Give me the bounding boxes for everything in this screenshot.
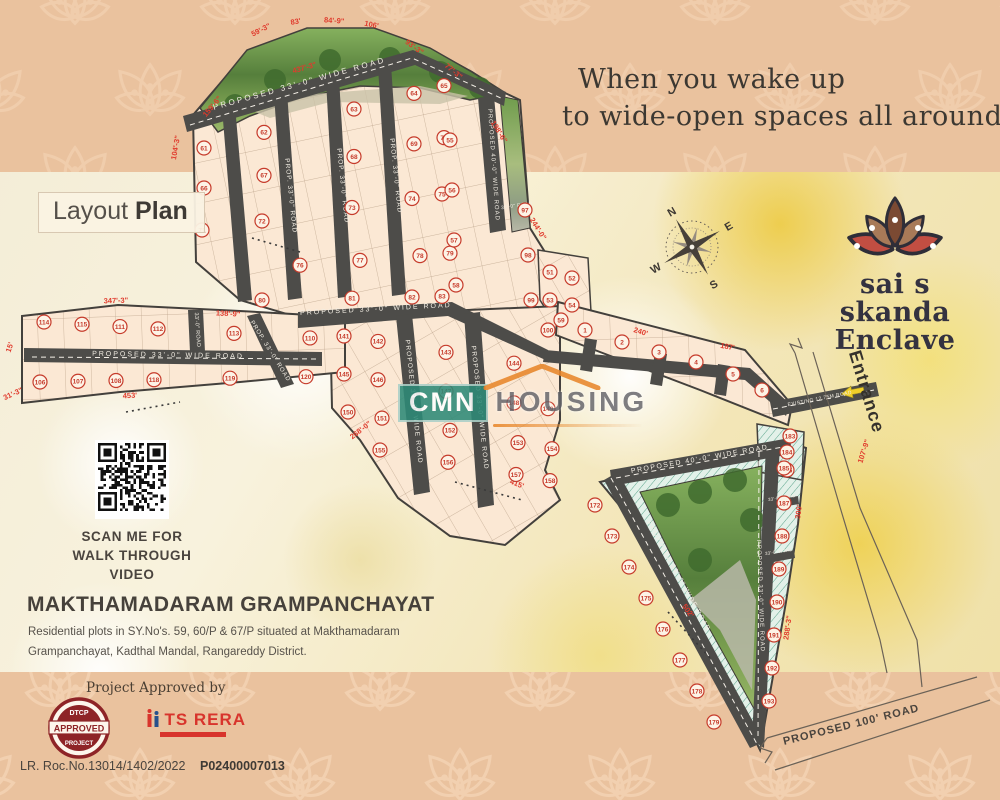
- boundary-dimension: 15': [4, 341, 16, 354]
- boundary-dimension: 453': [122, 391, 137, 401]
- plot-number: 82: [408, 294, 416, 301]
- plot-number: 155: [375, 447, 386, 454]
- plot-number: 118: [149, 377, 160, 384]
- plot-number: 73: [348, 205, 356, 212]
- plot-number: 1: [583, 327, 587, 334]
- plot-number: 172: [590, 502, 601, 509]
- plot-number: 142: [373, 339, 384, 346]
- plot-number: 152: [445, 428, 456, 435]
- plot-number: 179: [709, 719, 720, 726]
- plot-number: 69: [410, 141, 418, 148]
- plot-number: 58: [452, 282, 460, 289]
- plot-number: 151: [377, 415, 388, 422]
- plot-number: 99: [527, 297, 535, 304]
- plot-number: 63: [350, 106, 358, 113]
- rera-number: P02400007013: [200, 759, 285, 773]
- plot-number: 108: [111, 378, 122, 385]
- location-desc-line2: Grampanchayat, Kadthal Mandal, Rangaredd…: [28, 646, 307, 658]
- plot-number: 146: [373, 377, 384, 384]
- banner-line1: When you wake up: [578, 64, 845, 95]
- plot-number: 177: [675, 657, 686, 664]
- plot-number: 97: [521, 207, 529, 214]
- plot-number: 5: [731, 371, 735, 378]
- plot-number: 54: [568, 302, 576, 309]
- dtcp-approved-badge: DTCP APPROVED PROJECT: [48, 697, 110, 759]
- plot-number: 110: [305, 335, 316, 342]
- boundary-dimension: 138'-9": [216, 308, 241, 318]
- plot-number: 174: [624, 564, 635, 571]
- plot-number: 81: [348, 296, 356, 303]
- plot-number: 78: [416, 253, 424, 260]
- plot-number: 79: [446, 251, 454, 258]
- svg-text:PROJECT: PROJECT: [65, 741, 94, 747]
- plot-number: 187: [779, 500, 790, 507]
- qr-caption-line2: WALK THROUGH VIDEO: [52, 546, 212, 584]
- plot-number: 191: [769, 632, 780, 639]
- brand-name-line1: sai s skanda: [800, 271, 990, 327]
- watermark-housing: HOUSING: [496, 386, 648, 418]
- plot-number: 67: [260, 173, 268, 180]
- plot-number: 145: [339, 371, 350, 378]
- plot-number: 153: [513, 440, 524, 447]
- plot-number: 190: [772, 599, 783, 606]
- svg-text:APPROVED: APPROVED: [54, 724, 105, 734]
- qr-caption-line1: SCAN ME FOR: [52, 527, 212, 546]
- plot-number: 52: [568, 275, 576, 282]
- plot-number: 74: [408, 196, 416, 203]
- plot-number: 157: [511, 472, 522, 479]
- boundary-dimension: 107'-9": [856, 438, 872, 465]
- plot-number: 4: [694, 359, 698, 366]
- plot-number: 141: [339, 333, 350, 340]
- ts-rera-strip: [160, 732, 226, 737]
- banner-line2: to wide-open spaces all around you: [562, 101, 1000, 132]
- plot-number: 173: [607, 533, 618, 540]
- plot-number: 185: [779, 465, 790, 472]
- developer-watermark: CMNHOUSING: [398, 384, 647, 427]
- plot-number: 80: [258, 297, 266, 304]
- boundary-dimension: 347'-3": [103, 296, 128, 306]
- plot-number: 53: [546, 297, 554, 304]
- lr-number: LR. Roc.No.13014/1402/2022: [20, 759, 185, 773]
- plot-number: 184: [782, 449, 793, 456]
- location-desc-line1: Residential plots in SY.No's. 59, 60/P &…: [28, 626, 400, 638]
- plot-number: 193: [764, 698, 775, 705]
- plot-number: 106: [35, 379, 46, 386]
- plot-number: 72: [258, 218, 266, 225]
- plot-number: 113: [229, 331, 240, 338]
- plot-number: 158: [545, 478, 556, 485]
- approved-by-heading: Project Approved by: [86, 680, 226, 696]
- compass-e: E: [723, 220, 735, 234]
- plot-number: 6: [760, 387, 764, 394]
- plot-number: 143: [441, 350, 452, 357]
- plot-number: 183: [785, 433, 796, 440]
- plot-number: 107: [73, 379, 84, 386]
- plot-number: 56: [448, 187, 456, 194]
- plot-number: 114: [39, 319, 50, 326]
- plot-number: 57: [450, 237, 458, 244]
- plot-number: 65: [440, 83, 448, 90]
- compass-w: W: [649, 261, 665, 277]
- location-heading: MAKTHAMADARAM GRAMPANCHAYAT: [27, 593, 434, 617]
- qr-block: SCAN ME FOR WALK THROUGH VIDEO: [52, 440, 212, 584]
- watermark-cmn: CMN: [398, 384, 488, 422]
- boundary-dimension: 300': [793, 504, 804, 520]
- brand-name-line2: Enclave: [800, 327, 990, 355]
- plot-number: 77: [356, 258, 364, 265]
- plot-number: 112: [153, 326, 164, 333]
- plot-number: 68: [350, 154, 358, 161]
- plot-number: 156: [443, 460, 454, 467]
- compass-n: N: [666, 205, 679, 219]
- plot-number: 55: [446, 137, 454, 144]
- layout-plan-label: Layout Plan: [38, 192, 205, 233]
- plot-number: 98: [524, 252, 532, 259]
- plot-number: 150: [343, 409, 354, 416]
- plot-number: 189: [774, 566, 785, 573]
- ts-rera-icon: [146, 708, 160, 728]
- brand-logo: sai s skanda Enclave: [800, 192, 990, 355]
- plot-number: 154: [547, 446, 558, 453]
- plot-number: 62: [260, 130, 268, 137]
- house-roof-icon: [482, 364, 602, 390]
- plot-number: 76: [296, 263, 304, 270]
- plot-number: 111: [115, 324, 126, 331]
- plot-number: 175: [641, 595, 652, 602]
- compass-icon: N E S W: [628, 184, 756, 314]
- compass-s: S: [708, 278, 720, 292]
- plot-number: 64: [410, 91, 418, 98]
- plot-number: 115: [77, 322, 88, 329]
- plot-number: 61: [200, 145, 208, 152]
- svg-text:DTCP: DTCP: [69, 710, 88, 717]
- plot-number: 120: [301, 374, 312, 381]
- ts-rera-logo: TS RERA: [146, 708, 246, 737]
- plot-number: 100: [543, 327, 554, 334]
- plot-number: 178: [692, 688, 703, 695]
- boundary-dimension: 84'-9": [324, 15, 345, 25]
- qr-code[interactable]: [95, 440, 169, 519]
- plot-number: 3: [657, 349, 661, 356]
- plot-number: 59: [557, 317, 565, 324]
- plot-number: 192: [767, 665, 778, 672]
- plot-number: 83: [438, 294, 446, 301]
- plot-number: 119: [225, 376, 236, 383]
- lotus-logo-icon: [840, 192, 950, 266]
- boundary-dimension: 83': [290, 16, 302, 27]
- plot-number: 2: [620, 339, 624, 346]
- plot-number: 51: [546, 269, 554, 276]
- plot-number: 176: [658, 626, 669, 633]
- plot-number: 188: [777, 533, 788, 540]
